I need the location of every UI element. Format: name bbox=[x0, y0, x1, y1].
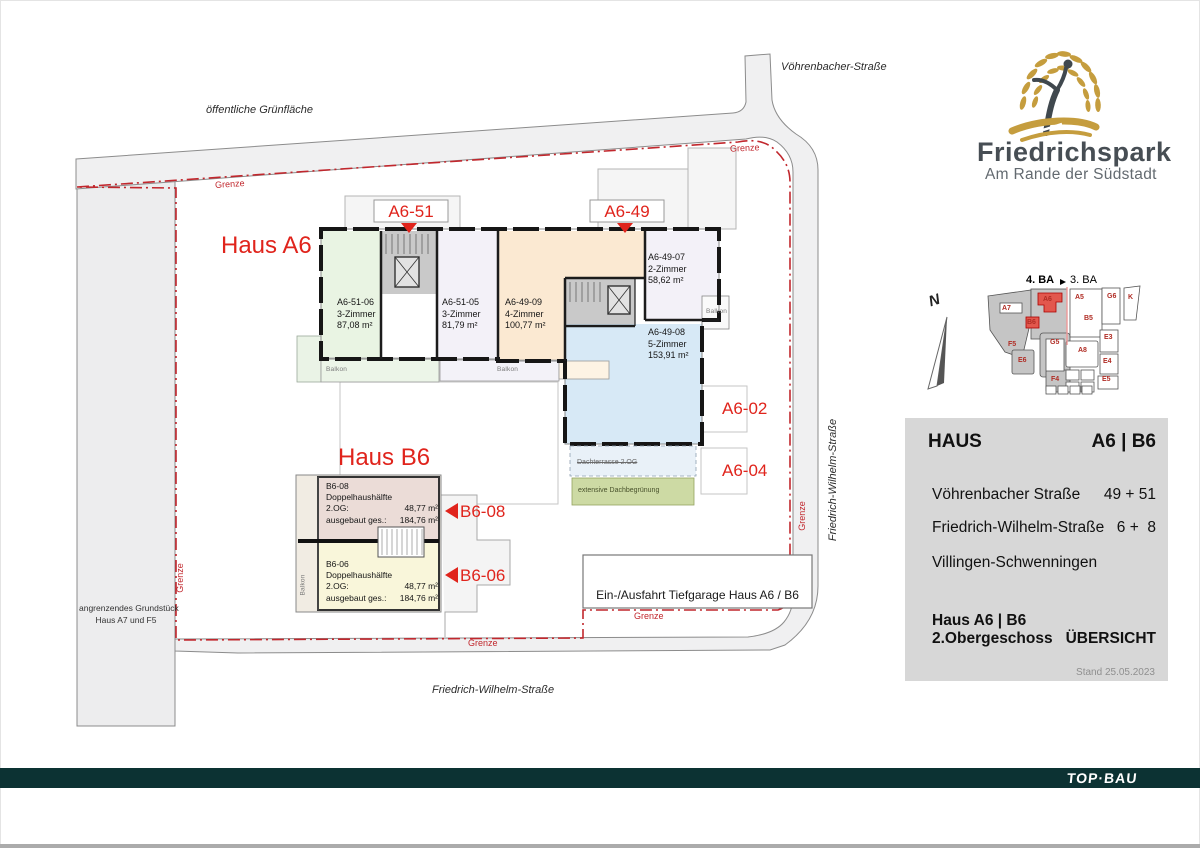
address-row: Vöhrenbacher Straße 49 + 51 bbox=[932, 486, 1156, 504]
minimap-building-label: E6 bbox=[1018, 357, 1027, 364]
area-label-gruenflaeche: öffentliche Grünfläche bbox=[206, 104, 313, 116]
unit-id: B6-06 bbox=[326, 559, 438, 570]
minimap-building-label: A6 bbox=[1043, 296, 1052, 303]
street-label-voehrenbacher: Vöhrenbacher-Straße bbox=[781, 61, 887, 73]
unit-total-area: 184,76 m² bbox=[400, 593, 438, 604]
apartment-label: A6-49-07 2-Zimmer 58,62 m² bbox=[648, 252, 687, 287]
entrance-label-a6-49: A6-49 bbox=[590, 202, 664, 222]
unit-total-area: 184,76 m² bbox=[400, 515, 438, 526]
footer-brand-logo: TOP·BAU bbox=[1067, 770, 1139, 786]
subject-row: 2.Obergeschoss ÜBERSICHT bbox=[932, 630, 1156, 648]
b6-unit-label: B6-08 Doppelhaushälfte 2.OG:48,77 m² aus… bbox=[326, 481, 438, 526]
minimap-building-label: A5 bbox=[1075, 294, 1084, 301]
info-panel: HAUS A6 | B6 Vöhrenbacher Straße 49 + 51… bbox=[905, 418, 1168, 681]
address-row: Friedrich-Wilhelm-Straße 6 + 8 bbox=[932, 519, 1156, 537]
balkon-label: Balkon bbox=[326, 366, 347, 373]
address1-label: Vöhrenbacher Straße bbox=[932, 486, 1080, 504]
address2-value: 6 + 8 bbox=[1117, 519, 1156, 537]
site-plan-sheet: öffentliche Grünfläche Vöhrenbacher-Stra… bbox=[0, 0, 1200, 848]
minimap-building-label: E5 bbox=[1102, 376, 1111, 383]
dachterrasse-label: Dachterrasse 2.OG bbox=[577, 459, 637, 466]
grenze-label: Grenze bbox=[730, 142, 760, 154]
ref-label-a6-02: A6-02 bbox=[722, 399, 767, 419]
apartment-area: 87,08 m² bbox=[337, 320, 376, 332]
apartment-id: A6-49-08 bbox=[648, 327, 689, 339]
address2-label: Friedrich-Wilhelm-Straße bbox=[932, 519, 1104, 537]
grenze-label: Grenze bbox=[797, 501, 807, 531]
apartment-rooms: 3-Zimmer bbox=[337, 309, 376, 321]
adjoining-parcel-strip bbox=[77, 157, 175, 726]
minimap-building-label: F5 bbox=[1008, 341, 1016, 348]
b6-unit-label: B6-06 Doppelhaushälfte 2.OG:48,77 m² aus… bbox=[326, 559, 438, 604]
stairwell-icon bbox=[378, 527, 424, 557]
apartment-id: A6-51-06 bbox=[337, 297, 376, 309]
adjoining-parcel-line2: Haus A7 und F5 bbox=[96, 615, 157, 625]
logo-brand-name: Friedrichspark bbox=[977, 137, 1172, 168]
unit-total-label: ausgebaut ges.: bbox=[326, 593, 387, 604]
grenze-label: Grenze bbox=[215, 178, 245, 190]
balkon-label: Balkon bbox=[497, 366, 518, 373]
minimap-building-label: A8 bbox=[1078, 347, 1087, 354]
grenze-label: Grenze bbox=[175, 563, 185, 593]
minimap-building-label: G5 bbox=[1050, 339, 1059, 346]
apartment-rooms: 2-Zimmer bbox=[648, 264, 687, 276]
subject-line2: 2.Obergeschoss bbox=[932, 630, 1053, 648]
north-arrow-icon bbox=[928, 317, 947, 389]
apartment-rooms: 3-Zimmer bbox=[442, 309, 481, 321]
entrance-label-a6-51: A6-51 bbox=[374, 202, 448, 222]
street-label-friedrich-wilhelm-right: Friedrich-Wilhelm-Straße bbox=[827, 419, 839, 541]
unit-id: B6-08 bbox=[326, 481, 438, 492]
tiefgarage-label: Ein-/Ausfahrt Tiefgarage Haus A6 / B6 bbox=[583, 588, 812, 602]
subject-row: Haus A6 | B6 bbox=[932, 612, 1156, 630]
logo-tree-icon bbox=[1012, 51, 1101, 140]
city-row: Villingen-Schwenningen bbox=[932, 554, 1156, 572]
unit-total-label: ausgebaut ges.: bbox=[326, 515, 387, 526]
minimap-building-label: B6 bbox=[1027, 319, 1036, 326]
unit-floor-area: 48,77 m² bbox=[404, 503, 438, 514]
ref-label-a6-04: A6-04 bbox=[722, 461, 767, 481]
apartment-label: A6-51-05 3-Zimmer 81,79 m² bbox=[442, 297, 481, 332]
minimap-ba3-label: 3. BA bbox=[1070, 274, 1097, 286]
stand-date: Stand 25.05.2023 bbox=[1076, 667, 1155, 678]
unit-floor-area: 48,77 m² bbox=[404, 581, 438, 592]
green-roof-label: extensive Dachbegrünung bbox=[578, 487, 659, 494]
unit-floor-label: 2.OG: bbox=[326, 581, 349, 592]
grenze-label: Grenze bbox=[634, 611, 664, 621]
minimap-building-label: F4 bbox=[1051, 376, 1059, 383]
apartment-id: A6-49-07 bbox=[648, 252, 687, 264]
adjoining-parcel-label: angrenzendes Grundstück Haus A7 und F5 bbox=[79, 603, 173, 627]
unit-floor-label: 2.OG: bbox=[326, 503, 349, 514]
apartment-rooms: 5-Zimmer bbox=[648, 339, 689, 351]
info-panel-header: HAUS A6 | B6 bbox=[928, 431, 1156, 453]
haus-value: A6 | B6 bbox=[1092, 431, 1156, 453]
balkon-label: Balkon bbox=[300, 574, 307, 595]
logo-tagline: Am Rande der Südstadt bbox=[985, 166, 1157, 184]
apartment-rooms: 4-Zimmer bbox=[505, 309, 546, 321]
unit-type: Doppelhaushälfte bbox=[326, 492, 438, 503]
ref-label-b6-06: B6-06 bbox=[460, 566, 505, 586]
haus-b6-title: Haus B6 bbox=[338, 444, 430, 472]
minimap-building-label: G6 bbox=[1107, 293, 1116, 300]
apartment-label: A6-51-06 3-Zimmer 87,08 m² bbox=[337, 297, 376, 332]
minimap-ba4-label: 4. BA bbox=[1026, 274, 1054, 286]
balkon-label: Balkon bbox=[706, 308, 727, 315]
unit-type: Doppelhaushälfte bbox=[326, 570, 438, 581]
subject-line1: Haus A6 | B6 bbox=[932, 612, 1026, 630]
footer-bar: TOP·BAU bbox=[0, 768, 1200, 788]
adjoining-parcel-line1: angrenzendes Grundstück bbox=[79, 603, 179, 613]
street-label-friedrich-wilhelm-bottom: Friedrich-Wilhelm-Straße bbox=[432, 684, 554, 696]
minimap-building-label: B5 bbox=[1084, 315, 1093, 322]
minimap-building-label: E3 bbox=[1104, 334, 1113, 341]
address1-value: 49 + 51 bbox=[1104, 486, 1156, 504]
apartment-area: 153,91 m² bbox=[648, 350, 689, 362]
ref-label-b6-08: B6-08 bbox=[460, 502, 505, 522]
apartment-area: 58,62 m² bbox=[648, 275, 687, 287]
apartment-id: A6-51-05 bbox=[442, 297, 481, 309]
haus-a6-title: Haus A6 bbox=[221, 232, 312, 260]
apartment-id: A6-49-09 bbox=[505, 297, 546, 309]
apartment-area: 100,77 m² bbox=[505, 320, 546, 332]
minimap-building-label: E4 bbox=[1103, 358, 1112, 365]
view-label: ÜBERSICHT bbox=[1066, 630, 1156, 648]
grenze-label: Grenze bbox=[468, 638, 498, 648]
minimap-building-label: A7 bbox=[1002, 305, 1011, 312]
bottom-border-strip bbox=[0, 844, 1200, 848]
minimap-building-label: K bbox=[1128, 294, 1133, 301]
haus-label: HAUS bbox=[928, 431, 982, 453]
apartment-label: A6-49-09 4-Zimmer 100,77 m² bbox=[505, 297, 546, 332]
apartment-area: 81,79 m² bbox=[442, 320, 481, 332]
apartment-label: A6-49-08 5-Zimmer 153,91 m² bbox=[648, 327, 689, 362]
minimap bbox=[988, 279, 1140, 394]
city-label: Villingen-Schwenningen bbox=[932, 554, 1097, 572]
ba-divider-marker bbox=[1060, 279, 1066, 285]
